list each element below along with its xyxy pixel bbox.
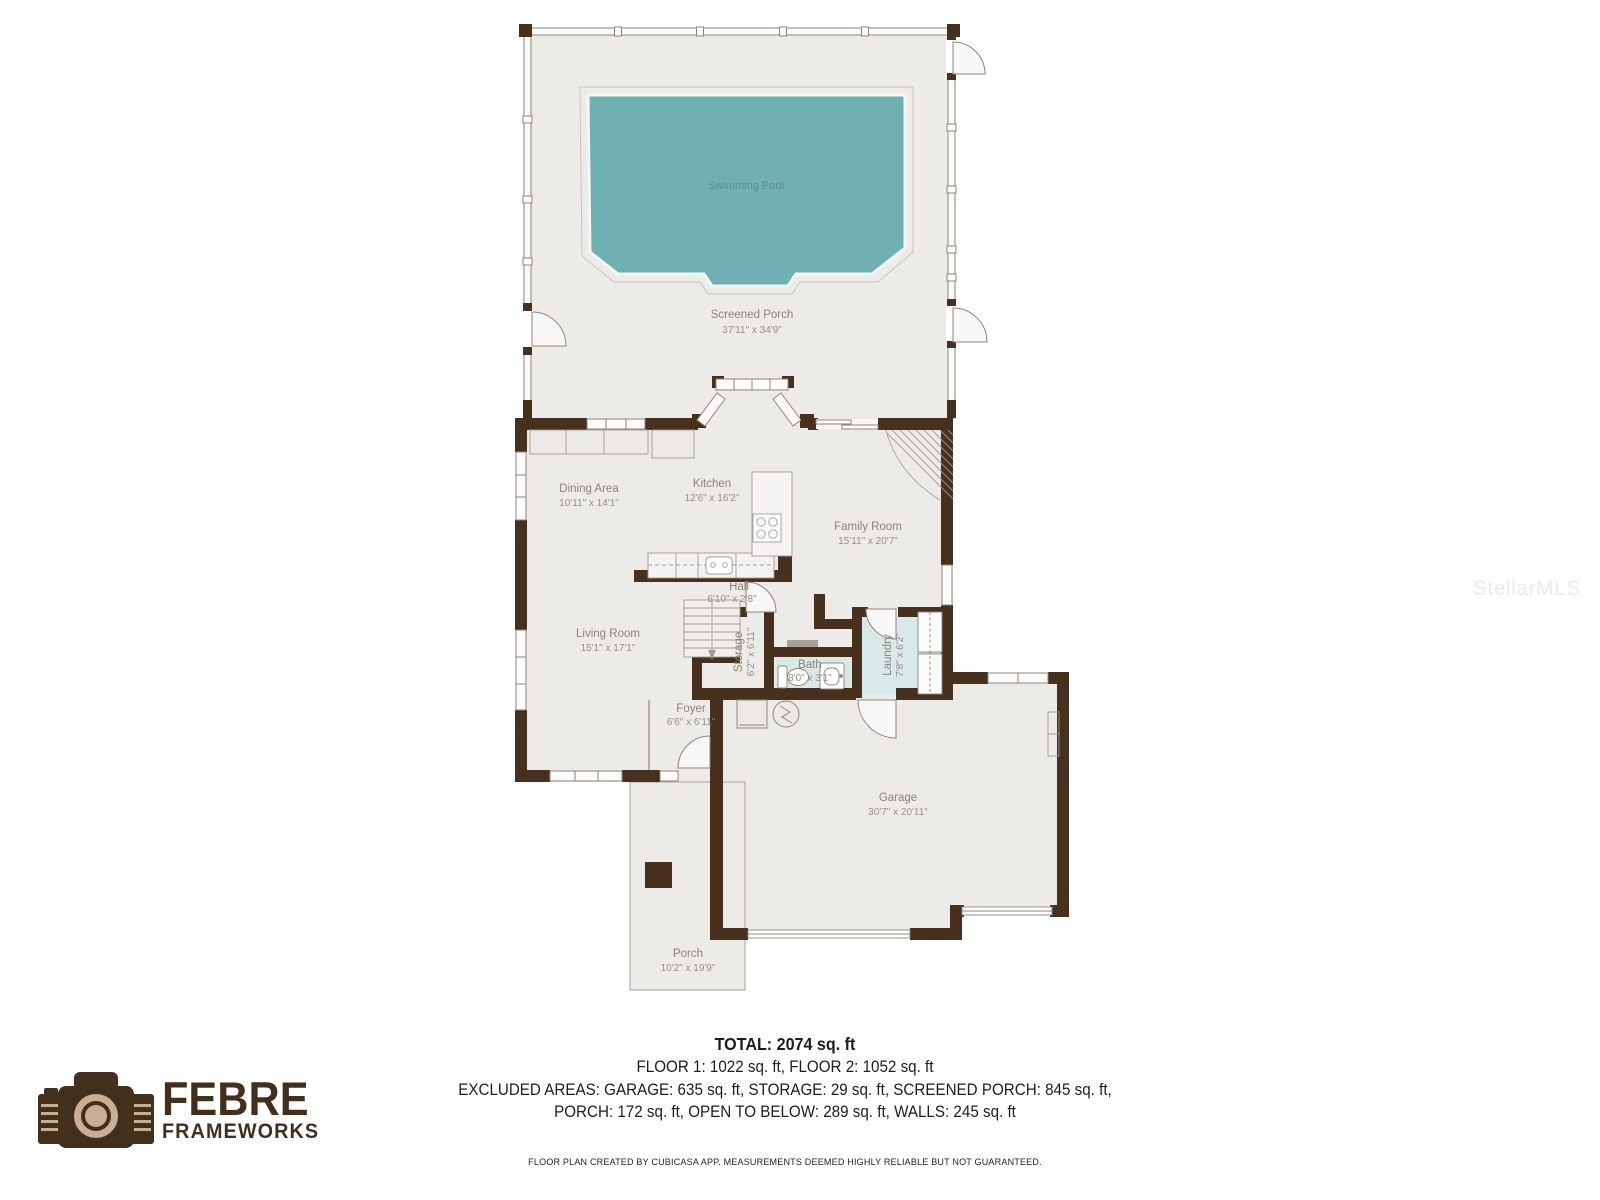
shelf [787,640,818,647]
febre-frameworks-logo: FEBRE FRAMEWORKS [36,1060,333,1160]
room-label-laundry: Laundry [882,634,894,676]
excluded-areas-line1: EXCLUDED AREAS: GARAGE: 635 sq. ft, STOR… [325,1079,1245,1102]
room-dims-kitchen: 12'6" x 16'2" [685,493,740,504]
room-label-porch: Porch [673,948,703,960]
porch-pillar [645,862,672,888]
area-summary: TOTAL: 2074 sq. ft FLOOR 1: 1022 sq. ft,… [325,1033,1245,1124]
room-label-garage: Garage [879,792,917,804]
porch-right-door-1-swing-arc [953,42,985,74]
room-label-foyer: Foyer [676,703,706,715]
room-dims-family: 15'11" x 20'7" [838,536,898,547]
room-dims-dining: 10'11" x 14'1" [559,498,619,509]
room-dims-storage: 6'2" x 6'11" [746,627,757,676]
family-room-window [942,565,952,605]
logo-text: FEBRE FRAMEWORKS [162,1077,319,1144]
room-dims-living: 15'1" x 17'1" [581,643,636,654]
porch-right-door-2-swing-arc [953,308,987,342]
sliding-door-icon [816,419,878,429]
room-dims-laundry: 7'8" x 6'2" [895,633,906,677]
camera-icon [36,1060,156,1160]
kitchen-counter [648,553,774,578]
total-area: TOTAL: 2074 sq. ft [325,1033,1245,1056]
stove-icon [753,514,781,542]
living-window [550,771,622,781]
utility-box-icon [737,700,767,728]
room-dims-foyer: 6'6" x 6'11" [667,717,716,728]
stellar-mls-watermark: StellarMLS [1473,577,1581,601]
dining-window [587,419,645,429]
logo-brand: FEBRE [162,1077,319,1120]
room-dims-hall: 6'10" x 2'8" [707,594,757,605]
floor-areas: FLOOR 1: 1022 sq. ft, FLOOR 2: 1052 sq. … [325,1056,1245,1079]
disclaimer-text: FLOOR PLAN CREATED BY CUBICASA APP. MEAS… [310,1157,1260,1168]
room-dims-porch: 10'2" x 19'9" [661,963,716,974]
room-dims-screened-porch: 37'11" x 34'9" [722,325,782,336]
water-heater-icon [773,701,799,727]
room-label-family: Family Room [834,521,902,533]
room-label-storage: Storage [733,632,745,672]
room-label-screened-porch: Screened Porch [711,309,793,321]
left-window-2 [516,630,526,710]
room-label-bath: Bath [798,659,822,671]
kitchen-island [752,472,792,556]
room-dims-garage: 30'7" x 20'11" [868,807,928,818]
room-label-kitchen: Kitchen [693,478,731,490]
floorplan-page: Swimming Pool Screened Porch 37'11" x 34… [0,0,1600,1200]
room-dims-bath: 8'0" x 3'1" [788,673,832,684]
floor-plan: Swimming Pool Screened Porch 37'11" x 34… [0,0,1600,1040]
stairs-down-icon [684,600,740,660]
sink-icon [706,557,732,574]
sidelight-window [660,771,678,781]
room-label-swimming-pool: Swimming Pool [708,180,784,192]
left-window-1 [516,452,526,520]
logo-sub: FRAMEWORKS [162,1120,319,1144]
room-label-living: Living Room [576,628,640,640]
room-label-dining: Dining Area [559,483,619,495]
excluded-areas-line2: PORCH: 172 sq. ft, OPEN TO BELOW: 289 sq… [325,1101,1245,1124]
room-label-hall: Hall [729,581,749,593]
